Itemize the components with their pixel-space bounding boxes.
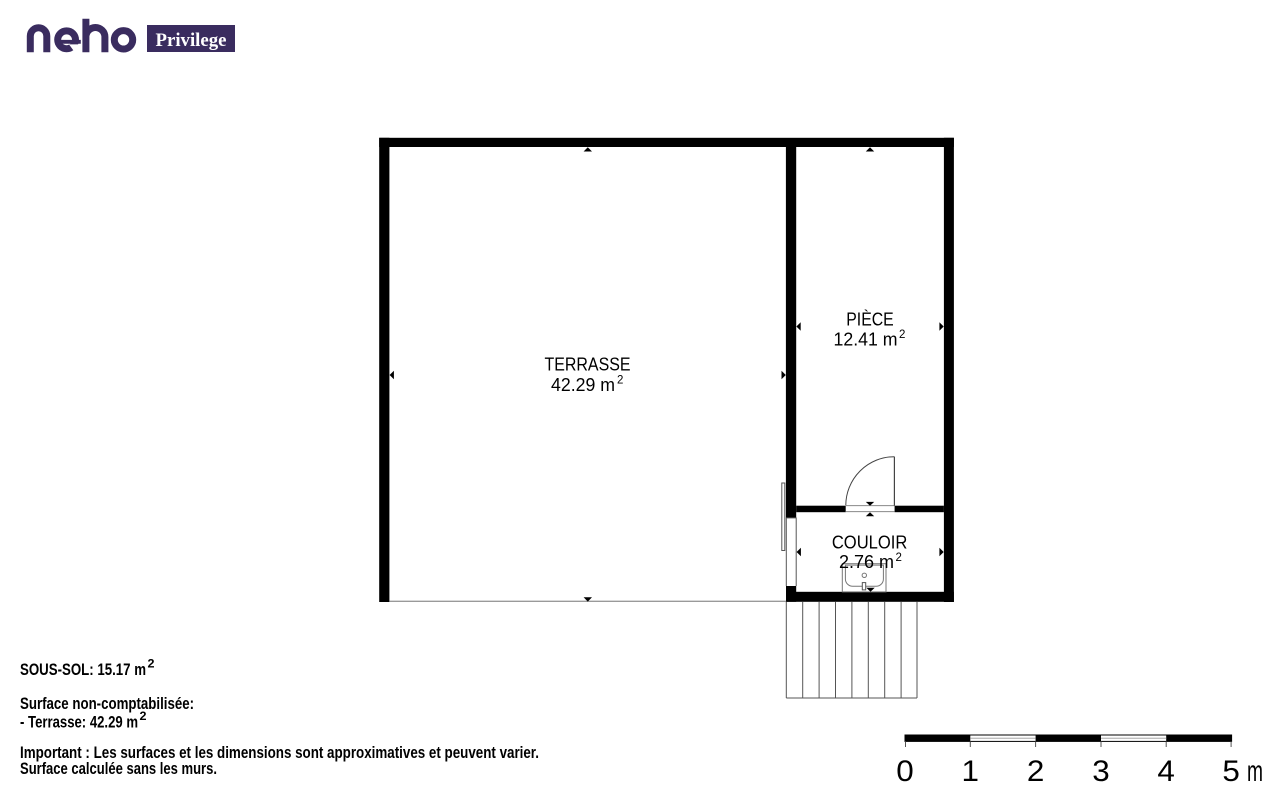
svg-text:SOUS-SOL: 15.17 m: SOUS-SOL: 15.17 m <box>20 661 146 679</box>
svg-text:2.76 m: 2.76 m <box>839 552 894 572</box>
svg-text:2: 2 <box>899 329 905 341</box>
svg-text:2: 2 <box>896 552 902 564</box>
svg-text:1: 1 <box>962 755 980 788</box>
svg-text:m: m <box>1247 755 1263 788</box>
svg-text:2: 2 <box>1027 755 1045 788</box>
svg-text:Surface non-comptabilisée:: Surface non-comptabilisée: <box>20 695 194 713</box>
svg-text:4: 4 <box>1157 755 1175 788</box>
svg-text:5: 5 <box>1222 755 1240 788</box>
svg-text:2: 2 <box>617 375 623 387</box>
svg-text:2: 2 <box>140 711 147 723</box>
svg-text:12.41 m: 12.41 m <box>834 329 898 349</box>
svg-text:- Terrasse: 42.29 m: - Terrasse: 42.29 m <box>20 714 138 732</box>
svg-text:COULOIR: COULOIR <box>832 533 908 553</box>
svg-text:3: 3 <box>1092 755 1110 788</box>
svg-text:0: 0 <box>896 755 914 788</box>
svg-text:PIÈCE: PIÈCE <box>846 310 894 330</box>
svg-text:2: 2 <box>148 659 155 671</box>
svg-text:Privilege: Privilege <box>156 30 227 51</box>
svg-text:Surface calculée sans les murs: Surface calculée sans les murs. <box>20 760 217 778</box>
svg-text:42.29 m: 42.29 m <box>551 375 615 395</box>
svg-text:TERRASSE: TERRASSE <box>545 355 631 375</box>
